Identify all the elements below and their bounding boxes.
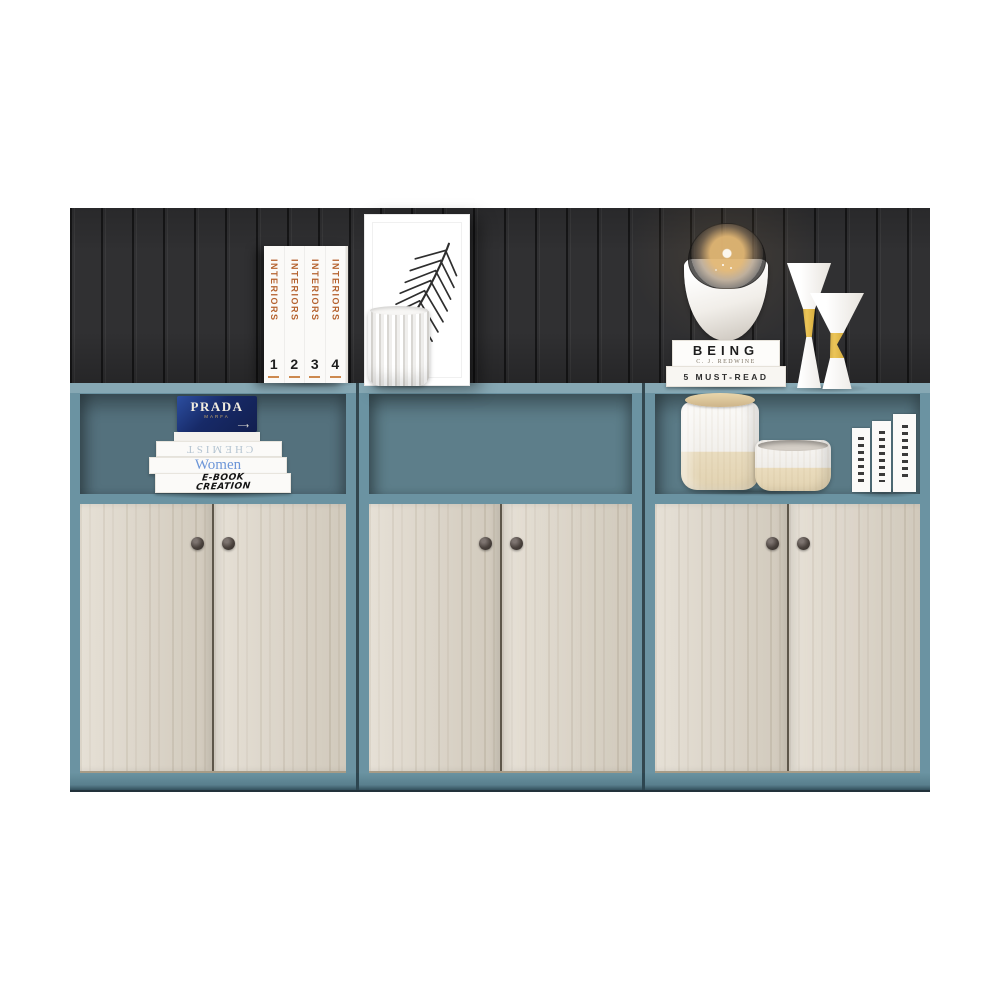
arrow-icon: ⟶ xyxy=(238,422,249,430)
table-lamp-glass-dome xyxy=(688,223,766,289)
book-spine: INTERIORS 2 xyxy=(285,246,306,383)
fluted-vase xyxy=(368,309,430,386)
door-panel xyxy=(369,504,502,771)
door-panel xyxy=(655,504,789,771)
door-knob xyxy=(797,537,810,550)
interiors-book-set: INTERIORS 1 INTERIORS 2 INTERIORS 3 INTE… xyxy=(264,246,348,383)
door-knob xyxy=(766,537,779,550)
door-knob xyxy=(479,537,492,550)
mustread-book: 5 MUST-READ xyxy=(666,366,786,387)
candleholder-short xyxy=(810,293,864,389)
volume-number-group: 2 xyxy=(289,356,300,378)
volume-number-group: 4 xyxy=(330,356,341,378)
cabinet-unit-middle xyxy=(359,383,642,773)
volume-tick xyxy=(289,376,300,378)
chemist-book: CHEMIST xyxy=(156,441,282,457)
book-spine: INTERIORS 3 xyxy=(305,246,326,383)
door-panel xyxy=(80,504,214,771)
volume-number-group: 1 xyxy=(268,356,279,378)
volume-number: 2 xyxy=(290,356,298,372)
open-shelf-middle xyxy=(369,394,632,494)
spine-title: INTERIORS xyxy=(289,259,299,322)
book-title: PRADA xyxy=(191,401,244,413)
volume-tick xyxy=(268,376,279,378)
volume-number: 1 xyxy=(270,356,278,372)
doors-right-unit xyxy=(655,504,920,773)
lidded-ceramic-jar xyxy=(681,393,759,490)
ebook-creation-book: E-BOOK CREATION xyxy=(155,473,291,493)
book-title: BEING xyxy=(693,344,759,357)
spine-title: INTERIORS xyxy=(330,259,340,322)
book-title-upside-down: CHEMIST xyxy=(184,443,253,455)
jar-lid xyxy=(685,393,755,407)
product-photo: INTERIORS 1 INTERIORS 2 INTERIORS 3 INTE… xyxy=(0,0,1000,1000)
spine-title: INTERIORS xyxy=(269,259,279,322)
plinth-seam xyxy=(642,773,645,790)
book-subtitle: MARFA xyxy=(204,414,230,419)
book-spine xyxy=(872,421,891,492)
door-panel xyxy=(789,504,921,771)
book-spine: INTERIORS 4 xyxy=(326,246,347,383)
spine-text-marks xyxy=(879,431,885,482)
book-title-line: CREATION xyxy=(195,482,251,492)
candleholder-cup xyxy=(810,293,864,333)
doors-left-unit xyxy=(80,504,346,773)
being-book: BEING C. J. REDWINE xyxy=(672,340,780,368)
standing-book-row xyxy=(852,414,916,492)
prada-marfa-book: PRADA MARFA ⟶ xyxy=(177,396,257,432)
volume-number-group: 3 xyxy=(309,356,320,378)
book-pages xyxy=(174,432,260,441)
plinth-base xyxy=(70,773,930,790)
book-author: C. J. REDWINE xyxy=(696,359,756,365)
volume-number: 4 xyxy=(331,356,339,372)
plinth-seam xyxy=(356,773,359,790)
door-panel xyxy=(214,504,346,771)
volume-number: 3 xyxy=(311,356,319,372)
book-spine xyxy=(852,428,870,492)
door-panel xyxy=(502,504,633,771)
volume-tick xyxy=(309,376,320,378)
volume-tick xyxy=(330,376,341,378)
book-spine: INTERIORS 1 xyxy=(264,246,285,383)
doors-middle-unit xyxy=(369,504,632,773)
door-knob xyxy=(222,537,235,550)
spine-title: INTERIORS xyxy=(310,259,320,322)
jar-body xyxy=(681,402,759,490)
door-knob xyxy=(510,537,523,550)
spine-text-marks xyxy=(902,425,908,481)
candleholder-gold-band xyxy=(810,333,864,358)
women-book: Women xyxy=(149,457,287,474)
book-title: Women xyxy=(195,457,241,474)
book-spine xyxy=(893,414,916,492)
book-title: 5 MUST-READ xyxy=(683,372,768,382)
spine-text-marks xyxy=(858,437,864,483)
door-knob xyxy=(191,537,204,550)
ceramic-bowl xyxy=(755,440,831,491)
candleholder-base xyxy=(810,358,864,389)
